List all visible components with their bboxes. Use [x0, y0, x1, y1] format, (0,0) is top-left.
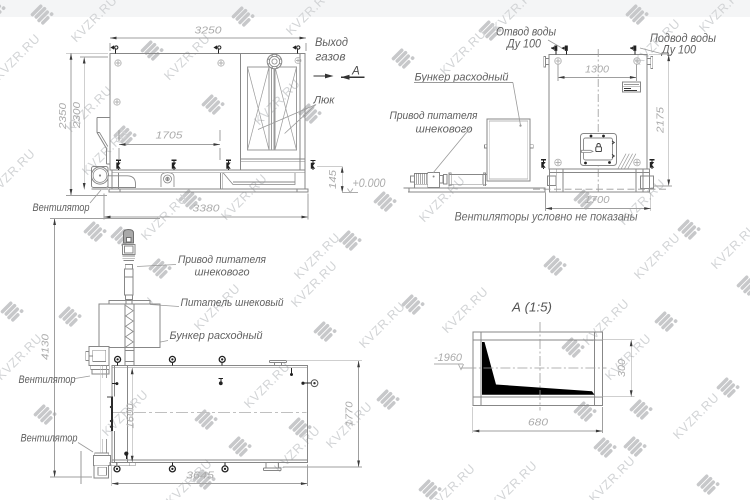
svg-text:газов: газов	[316, 52, 346, 64]
svg-text:680: 680	[528, 417, 548, 429]
svg-text:-1960: -1960	[434, 352, 463, 364]
svg-text:+0.000: +0.000	[353, 178, 387, 190]
svg-text:Питатель шнековый: Питатель шнековый	[181, 297, 284, 309]
svg-text:3250: 3250	[195, 25, 222, 37]
svg-text:2300: 2300	[71, 102, 83, 129]
svg-text:Вентилятор: Вентилятор	[21, 433, 78, 445]
svg-text:2350: 2350	[57, 103, 69, 130]
svg-text:1300: 1300	[585, 64, 609, 76]
svg-text:3645: 3645	[186, 470, 214, 482]
svg-text:Бункер расходный: Бункер расходный	[170, 330, 263, 342]
svg-text:Ду 100: Ду 100	[505, 39, 541, 51]
svg-text:Отвод воды: Отвод воды	[496, 27, 556, 39]
svg-text:2175: 2175	[655, 107, 667, 134]
svg-text:1700: 1700	[585, 194, 610, 206]
svg-text:Ду 100: Ду 100	[660, 45, 696, 57]
svg-text:1770: 1770	[344, 401, 356, 426]
svg-text:Выход: Выход	[315, 37, 348, 49]
svg-text:Привод питателя: Привод питателя	[390, 110, 478, 122]
svg-text:шнекового: шнекового	[195, 267, 250, 279]
svg-text:3380: 3380	[193, 203, 220, 215]
svg-text:Бункер расходный: Бункер расходный	[415, 72, 509, 84]
svg-text:А: А	[351, 66, 360, 78]
svg-text:шнекового: шнекового	[416, 124, 473, 136]
svg-text:4130: 4130	[40, 334, 52, 360]
svg-text:Вентиляторы условно не показан: Вентиляторы условно не показаны	[455, 212, 638, 224]
svg-text:1600: 1600	[125, 403, 137, 428]
svg-text:Вентилятор: Вентилятор	[33, 202, 90, 214]
svg-text:1705: 1705	[156, 130, 183, 142]
svg-text:300: 300	[616, 359, 628, 377]
svg-text:Подвод воды: Подвод воды	[650, 33, 717, 45]
svg-text:145: 145	[327, 170, 339, 189]
svg-text:Привод питателя: Привод питателя	[178, 254, 266, 266]
svg-text:Вентилятор: Вентилятор	[19, 374, 76, 386]
svg-text:А (1:5): А (1:5)	[511, 300, 552, 315]
